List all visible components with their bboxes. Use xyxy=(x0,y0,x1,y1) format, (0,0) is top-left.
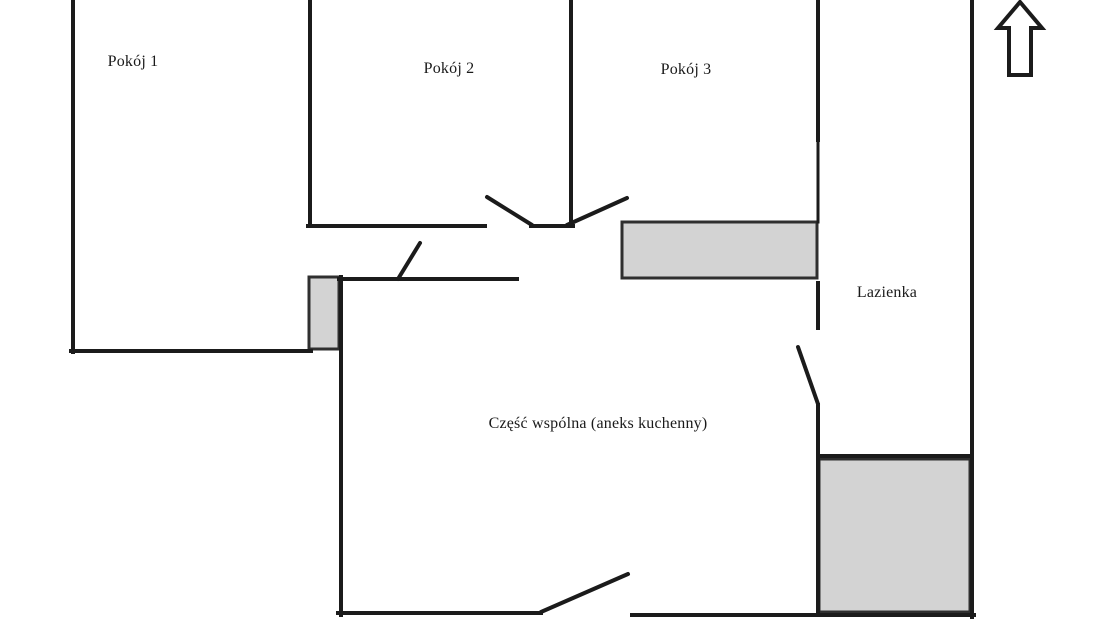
gray-block-bottom-right xyxy=(819,459,970,612)
room-label-lazienka: Lazienka xyxy=(857,284,917,302)
door-room3 xyxy=(567,198,627,225)
room-label-pokoj-1: Pokój 1 xyxy=(108,53,159,71)
room-label-pokoj-3: Pokój 3 xyxy=(661,61,712,79)
door-entrance xyxy=(541,574,628,612)
door-room2 xyxy=(487,197,532,225)
door-bathroom xyxy=(798,347,818,404)
floor-plan-drawing xyxy=(0,0,1110,623)
room-label-pokoj-2: Pokój 2 xyxy=(424,60,475,78)
room-label-czesc-wspolna: Część wspólna (aneks kuchenny) xyxy=(489,415,708,433)
floor-plan: Pokój 1 Pokój 2 Pokój 3 Lazienka Część w… xyxy=(0,0,1110,623)
north-arrow-icon xyxy=(998,2,1042,75)
door-corridor xyxy=(398,243,420,279)
gray-block-corridor xyxy=(309,277,339,349)
gray-block-under-room3 xyxy=(622,222,817,278)
